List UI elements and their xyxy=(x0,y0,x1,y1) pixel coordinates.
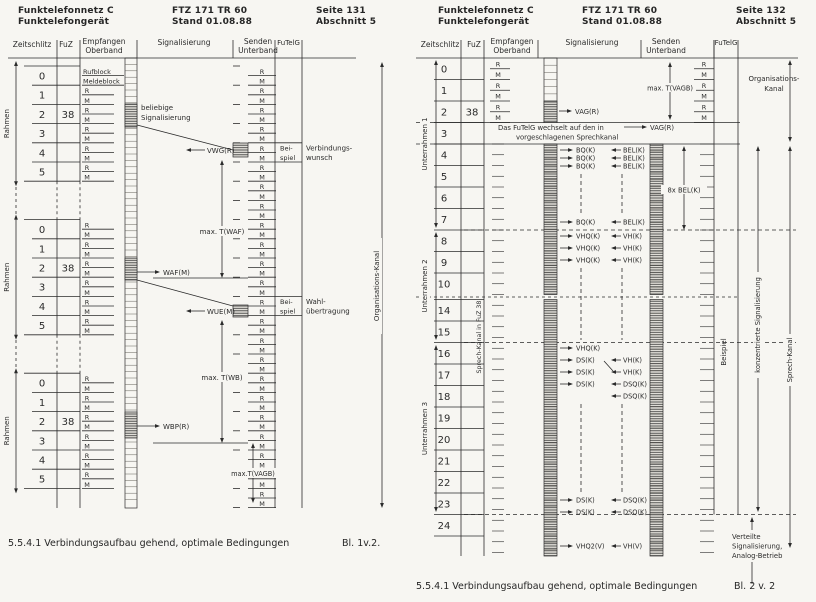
slot-number: 3 xyxy=(39,129,45,140)
rx-strip-sprechkanal xyxy=(544,144,557,295)
slot-number: 5 xyxy=(39,475,45,486)
rm-label: M xyxy=(701,114,707,122)
rm-label: M xyxy=(259,289,265,297)
frame-label: Rahmen xyxy=(3,263,11,292)
timer-max-t-vagb xyxy=(668,62,672,67)
rm-label: R xyxy=(260,260,265,268)
sprech-kanal-axis xyxy=(788,543,792,548)
rm-label: M xyxy=(259,270,265,278)
row-number: 9 xyxy=(441,258,447,269)
rm-label: R xyxy=(85,279,90,287)
slot-number: 0 xyxy=(39,225,45,236)
rm-label: M xyxy=(259,231,265,239)
verteilte-note: Analog-Betrieb xyxy=(732,552,782,560)
rm-label: M xyxy=(259,481,265,489)
rm-label: R xyxy=(85,87,90,95)
timer-label-max-t-vagb: max. T(VAGB) xyxy=(647,85,693,93)
rm-label: M xyxy=(84,308,90,316)
rm-label: R xyxy=(260,241,265,249)
arrow-waf xyxy=(155,270,160,274)
col-header-zeitschlitz: Zeitschlitz xyxy=(421,40,460,49)
subframe-bracket xyxy=(434,60,438,65)
rm-label: M xyxy=(259,442,265,450)
signal-label-BEL(K): BEL(K) xyxy=(623,155,645,163)
signal-label-beliebige: Signalisierung xyxy=(141,114,191,122)
konzentrierte-signalisierung-label: konzentrierte Signalisierung xyxy=(754,277,762,373)
rm-label: R xyxy=(496,61,501,69)
rm-label: R xyxy=(260,222,265,230)
beispiel-label: Bei- xyxy=(280,298,293,306)
rm-label: R xyxy=(260,394,265,402)
col-header-fuz: FuZ xyxy=(467,40,481,49)
subframe-label: Unterrahmen 3 xyxy=(421,402,429,455)
col-header-senden: Unterband xyxy=(646,46,686,55)
slot-number: 0 xyxy=(39,72,45,83)
signal-label-BQ(K): BQ(K) xyxy=(576,147,595,155)
rm-label: M xyxy=(259,500,265,508)
arrow-BQ(K) xyxy=(568,148,573,152)
arrow-vag xyxy=(642,125,647,129)
signal-label-vag: VAG(R) xyxy=(650,124,674,132)
rm-label: R xyxy=(85,471,90,479)
bel-count-bracket xyxy=(682,146,686,151)
arrow-VHQ2(V) xyxy=(568,544,573,548)
col-header-empfangen: Empfangen xyxy=(83,37,126,46)
arrow-vag xyxy=(567,109,572,113)
rm-label: R xyxy=(260,279,265,287)
rm-label: M xyxy=(259,346,265,354)
slot-number: 1 xyxy=(39,91,45,102)
rm-label: R xyxy=(260,337,265,345)
rm-label: M xyxy=(84,423,90,431)
timer-max-t-wb xyxy=(220,320,224,325)
rm-label: R xyxy=(85,433,90,441)
konzentrierte-signalisierung-axis xyxy=(756,146,760,151)
channel-change-note: Das FuTelG wechselt auf den in xyxy=(498,124,604,132)
rm-label: M xyxy=(495,71,501,79)
note-wahluebertragung: übertragung xyxy=(306,308,350,316)
rm-label: R xyxy=(85,375,90,383)
signal-label-VH(K): VH(K) xyxy=(623,245,642,253)
row-number: 20 xyxy=(438,435,451,446)
rm-label: M xyxy=(84,154,90,162)
signal-label-wue: WUE(M) xyxy=(207,308,235,316)
rm-label: M xyxy=(84,270,90,278)
row-number: 16 xyxy=(438,349,451,360)
signal-label-VH(K): VH(K) xyxy=(623,369,642,377)
row-number: 0 xyxy=(441,65,447,76)
rm-label: M xyxy=(259,308,265,316)
fuz-value: 38 xyxy=(466,108,479,119)
rm-label: M xyxy=(259,404,265,412)
rm-label: M xyxy=(259,116,265,124)
rx-burst-vag xyxy=(544,101,557,123)
beispiel-label: spiel xyxy=(280,154,295,162)
signal-label-VH(V): VH(V) xyxy=(623,543,642,551)
signal-label-VHQ(K): VHQ(K) xyxy=(576,257,600,265)
col-header-empfangen: Empfangen xyxy=(491,37,534,46)
signal-label-DS(K): DS(K) xyxy=(576,357,595,365)
signal-label-VHQ2(V): VHQ2(V) xyxy=(576,543,605,551)
frame-bracket xyxy=(14,488,18,493)
timing-diagram-organisationskanal: ZeitschlitzFuZEmpfangenOberbandSignalisi… xyxy=(0,0,408,602)
slot-number: 4 xyxy=(39,148,45,159)
signal-label-BQ(K): BQ(K) xyxy=(576,163,595,171)
rm-label: M xyxy=(84,327,90,335)
bel-count-label: 8x BEL(K) xyxy=(667,187,700,195)
rm-label: R xyxy=(85,260,90,268)
organisationskanal-label: Organisations- xyxy=(749,75,800,83)
rm-label: R xyxy=(260,68,265,76)
beispiel-label: Beispiel xyxy=(720,338,728,365)
verteilte-note: Verteilte xyxy=(732,533,761,541)
rx-burst-beliebige xyxy=(125,104,137,127)
rm-label: R xyxy=(496,82,501,90)
row-number: 23 xyxy=(438,500,451,511)
slot-number: 5 xyxy=(39,321,45,332)
slot-number: 1 xyxy=(39,398,45,409)
arrow-DS(K) xyxy=(568,510,573,514)
col-header-futelg: FuTelG xyxy=(277,39,300,47)
caption-text: 5.5.4.1 Verbindungsaufbau gehend, optima… xyxy=(416,581,697,592)
organisationskanal-axis xyxy=(788,137,792,142)
rm-label: R xyxy=(260,452,265,460)
rm-label: R xyxy=(260,356,265,364)
signal-label-DS(K): DS(K) xyxy=(576,509,595,517)
signal-label-DSQ(K): DSQ(K) xyxy=(623,497,647,505)
slot-number: 2 xyxy=(39,264,45,275)
timer-max-t-vagb xyxy=(668,115,672,120)
note-verbindungswunsch: Verbindungs- xyxy=(306,145,353,153)
row-number: 15 xyxy=(438,328,451,339)
rm-label: R xyxy=(85,164,90,172)
rm-label: R xyxy=(85,452,90,460)
fuz-value: 38 xyxy=(62,264,75,275)
subframe-label: Unterrahmen 1 xyxy=(421,117,429,170)
fuz-value: 38 xyxy=(62,417,75,428)
rm-label: R xyxy=(260,145,265,153)
subframe-label: Unterrahmen 2 xyxy=(421,259,429,312)
col-header-zeitschlitz: Zeitschlitz xyxy=(13,40,52,49)
subframe-bracket xyxy=(434,223,438,228)
rm-label: R xyxy=(85,222,90,230)
row-number: 10 xyxy=(438,280,451,291)
col-header-senden: Senden xyxy=(652,37,681,46)
rm-label: M xyxy=(84,135,90,143)
sheet-number: Bl. 2 v. 2 xyxy=(734,581,775,592)
rm-label: R xyxy=(85,106,90,114)
rm-label: R xyxy=(85,298,90,306)
rm-label: R xyxy=(496,104,501,112)
rm-label: M xyxy=(259,97,265,105)
row-number: 2 xyxy=(441,108,447,119)
slot-number: 2 xyxy=(39,110,45,121)
rm-label: R xyxy=(702,82,707,90)
arrow-DS(K) xyxy=(568,498,573,502)
rm-label: M xyxy=(259,250,265,258)
timer-label-max-t-waf: max. T(WAF) xyxy=(200,228,245,236)
row-number: 8 xyxy=(441,237,447,248)
subframe-bracket xyxy=(434,232,438,237)
rm-label: R xyxy=(85,318,90,326)
signal-label-VH(K): VH(K) xyxy=(623,233,642,241)
signal-label-BQ(K): BQ(K) xyxy=(576,155,595,163)
frame-bracket xyxy=(14,181,18,186)
row-number: 22 xyxy=(438,478,451,489)
rm-label: M xyxy=(259,174,265,182)
row-number: 3 xyxy=(441,129,447,140)
rm-label: R xyxy=(260,298,265,306)
rm-label: R xyxy=(260,164,265,172)
arrow-BQ(K) xyxy=(568,156,573,160)
caption-text: 5.5.4.1 Verbindungsaufbau gehend, optima… xyxy=(8,538,289,549)
meldeblock-label: Meldeblock xyxy=(83,78,120,86)
rm-label: R xyxy=(260,414,265,422)
figure-caption: 5.5.4.1 Verbindungsaufbau gehend, optima… xyxy=(8,538,289,549)
rm-label: M xyxy=(701,71,707,79)
signal-label-VHQ(K): VHQ(K) xyxy=(576,233,600,241)
arrow-wbp xyxy=(155,424,160,428)
slot-number: 0 xyxy=(39,379,45,390)
col-header-fuz: FuZ xyxy=(59,40,73,49)
reply-diagonal xyxy=(604,361,613,371)
rm-label: R xyxy=(260,433,265,441)
tx-strip-sprechkanal xyxy=(650,144,663,295)
timing-diagram-sprechkanal: ZeitschlitzFuZEmpfangenOberbandSignalisi… xyxy=(408,0,816,602)
rm-label: M xyxy=(701,93,707,101)
arrow-VHQ(K) xyxy=(568,234,573,238)
rm-label: M xyxy=(495,93,501,101)
col-header-signalisierung: Signalisierung xyxy=(565,38,618,47)
rm-label: R xyxy=(260,87,265,95)
signal-label-wbp: WBP(R) xyxy=(163,423,190,431)
subframe-bracket xyxy=(434,345,438,350)
timer-max-t-wb xyxy=(220,438,224,443)
frame-bracket xyxy=(14,335,18,340)
channel-change-note: vorgeschlagenen Sprechkanal xyxy=(516,134,618,142)
rm-label: M xyxy=(259,385,265,393)
signal-label-BEL(K): BEL(K) xyxy=(623,163,645,171)
rm-label: M xyxy=(84,385,90,393)
sprech-kanal-fuz-label: Sprech-Kanal in FuZ 38 xyxy=(476,301,483,374)
signal-label-vag: VAG(R) xyxy=(575,108,599,116)
row-number: 14 xyxy=(438,306,451,317)
signal-label-BEL(K): BEL(K) xyxy=(623,219,645,227)
arrow-DS(K) xyxy=(568,382,573,386)
sprech-kanal-label: Sprech-Kanal xyxy=(786,337,794,382)
frame-bracket xyxy=(14,368,18,373)
row-number: 21 xyxy=(438,457,451,468)
assignment-diagonal xyxy=(137,280,233,306)
rm-label: R xyxy=(260,490,265,498)
rm-label: R xyxy=(85,145,90,153)
rm-label: M xyxy=(84,481,90,489)
rx-burst-waf xyxy=(125,258,137,280)
bel-count-bracket xyxy=(682,225,686,230)
arrow-DS(K) xyxy=(568,358,573,362)
row-number: 7 xyxy=(441,215,447,226)
signal-label-VH(K): VH(K) xyxy=(623,357,642,365)
rm-label: R xyxy=(85,126,90,134)
col-header-empfangen: Oberband xyxy=(493,46,530,55)
timer-max-t-vagb xyxy=(251,443,255,448)
signal-label-DSQ(K): DSQ(K) xyxy=(623,509,647,517)
rm-label: M xyxy=(259,423,265,431)
arrow-VHQ(K) xyxy=(568,346,573,350)
col-header-senden: Senden xyxy=(244,37,273,46)
signal-label-beliebige: beliebige xyxy=(141,104,173,112)
verteilte-note: Signalisierung, xyxy=(732,543,782,551)
figure-caption: 5.5.4.1 Verbindungsaufbau gehend, optima… xyxy=(416,581,697,592)
rm-label: M xyxy=(259,154,265,162)
beispiel-label: Bei- xyxy=(280,145,293,153)
rm-label: R xyxy=(85,241,90,249)
organisationskanal-axis xyxy=(788,60,792,65)
fuz-value: 38 xyxy=(62,110,75,121)
arrow-VHQ(K) xyxy=(568,246,573,250)
row-number: 6 xyxy=(441,194,447,205)
arrow-BQ(K) xyxy=(568,220,573,224)
row-number: 17 xyxy=(438,371,451,382)
rm-label: R xyxy=(260,126,265,134)
timer-max-t-vagb xyxy=(251,498,255,503)
rm-label: M xyxy=(259,193,265,201)
row-number: 19 xyxy=(438,414,451,425)
signal-label-BEL(K): BEL(K) xyxy=(623,147,645,155)
slot-number: 3 xyxy=(39,436,45,447)
signal-label-DS(K): DS(K) xyxy=(576,381,595,389)
row-number: 18 xyxy=(438,392,451,403)
organisationskanal-axis xyxy=(380,503,384,508)
signal-label-VH(K): VH(K) xyxy=(623,257,642,265)
rx-burst-wbp xyxy=(125,412,137,438)
signal-label-DS(K): DS(K) xyxy=(576,497,595,505)
rm-label: R xyxy=(260,202,265,210)
organisationskanal-axis xyxy=(380,62,384,67)
signal-label-VHQ(K): VHQ(K) xyxy=(576,245,600,253)
frame-bracket xyxy=(14,61,18,66)
col-header-signalisierung: Signalisierung xyxy=(157,38,210,47)
rm-label: M xyxy=(84,250,90,258)
rm-label: M xyxy=(84,289,90,297)
signal-label-DS(K): DS(K) xyxy=(576,369,595,377)
col-header-futelg: FuTelG xyxy=(715,39,738,47)
signal-label-BQ(K): BQ(K) xyxy=(576,219,595,227)
rm-label: M xyxy=(84,442,90,450)
timer-label-max-t-vagb: max.T(VAGB) xyxy=(231,470,275,478)
rm-label: M xyxy=(259,212,265,220)
row-number: 5 xyxy=(441,172,447,183)
arrow-DS(K) xyxy=(568,370,573,374)
signal-label-waf: WAF(M) xyxy=(163,269,190,277)
page-seite-131: Funktelefonnetz C Funktelefongerät FTZ 1… xyxy=(0,0,408,602)
rm-label: R xyxy=(260,183,265,191)
arrow-VHQ(K) xyxy=(568,258,573,262)
timer-max-t-waf xyxy=(220,273,224,278)
scanned-document-spread: { "ink": "#2b2b2b", "paper": "#f7f6f2", … xyxy=(0,0,816,602)
row-number: 24 xyxy=(438,521,451,532)
rm-label: M xyxy=(84,97,90,105)
col-header-empfangen: Oberband xyxy=(85,46,122,55)
tx-burst-vwg xyxy=(233,143,248,157)
rm-label: M xyxy=(84,174,90,182)
frame-label: Rahmen xyxy=(3,109,11,138)
slot-number: 2 xyxy=(39,417,45,428)
rm-label: M xyxy=(259,78,265,86)
rm-label: M xyxy=(84,231,90,239)
rm-label: M xyxy=(84,116,90,124)
sheet-number: Bl. 1v.2. xyxy=(342,538,380,549)
rufblock-label: Rufblock xyxy=(83,68,111,76)
col-header-senden: Unterband xyxy=(238,46,278,55)
frame-bracket xyxy=(14,215,18,220)
signal-label-VHQ(K): VHQ(K) xyxy=(576,345,600,353)
page-seite-132: Funktelefonnetz C Funktelefongerät FTZ 1… xyxy=(408,0,816,602)
slot-number: 3 xyxy=(39,283,45,294)
rm-label: M xyxy=(259,327,265,335)
signal-label-vwg: VWG(R) xyxy=(207,147,235,155)
slot-number: 1 xyxy=(39,244,45,255)
organisationskanal-label: Kanal xyxy=(764,85,783,93)
rm-label: M xyxy=(84,404,90,412)
rm-label: R xyxy=(85,414,90,422)
rm-label: R xyxy=(260,375,265,383)
organisationskanal-label: Organisations-Kanal xyxy=(373,251,381,321)
row-number: 1 xyxy=(441,86,447,97)
tx-burst-wue xyxy=(233,305,248,317)
rm-label: M xyxy=(259,135,265,143)
rm-label: M xyxy=(259,366,265,374)
signal-label-DSQ(K): DSQ(K) xyxy=(623,381,647,389)
rm-label: R xyxy=(702,104,707,112)
slot-number: 5 xyxy=(39,168,45,179)
rm-label: R xyxy=(260,318,265,326)
konzentrierte-signalisierung-axis xyxy=(756,507,760,512)
rm-label: R xyxy=(702,61,707,69)
frame-label: Rahmen xyxy=(3,416,11,445)
slot-number: 4 xyxy=(39,456,45,467)
arrow-BQ(K) xyxy=(568,164,573,168)
sprech-kanal-axis xyxy=(788,146,792,151)
rm-label: M xyxy=(84,462,90,470)
timer-max-t-waf xyxy=(220,160,224,165)
row-number: 4 xyxy=(441,151,447,162)
slot-number: 4 xyxy=(39,302,45,313)
note-wahluebertragung: Wahl- xyxy=(306,298,326,306)
rm-label: R xyxy=(260,106,265,114)
rm-label: M xyxy=(495,114,501,122)
rm-label: R xyxy=(85,394,90,402)
beispiel-label: spiel xyxy=(280,308,295,316)
timer-label-max-t-wb: max. T(WB) xyxy=(201,374,242,382)
note-verbindungswunsch: wunsch xyxy=(306,154,333,162)
signal-label-DSQ(K): DSQ(K) xyxy=(623,393,647,401)
